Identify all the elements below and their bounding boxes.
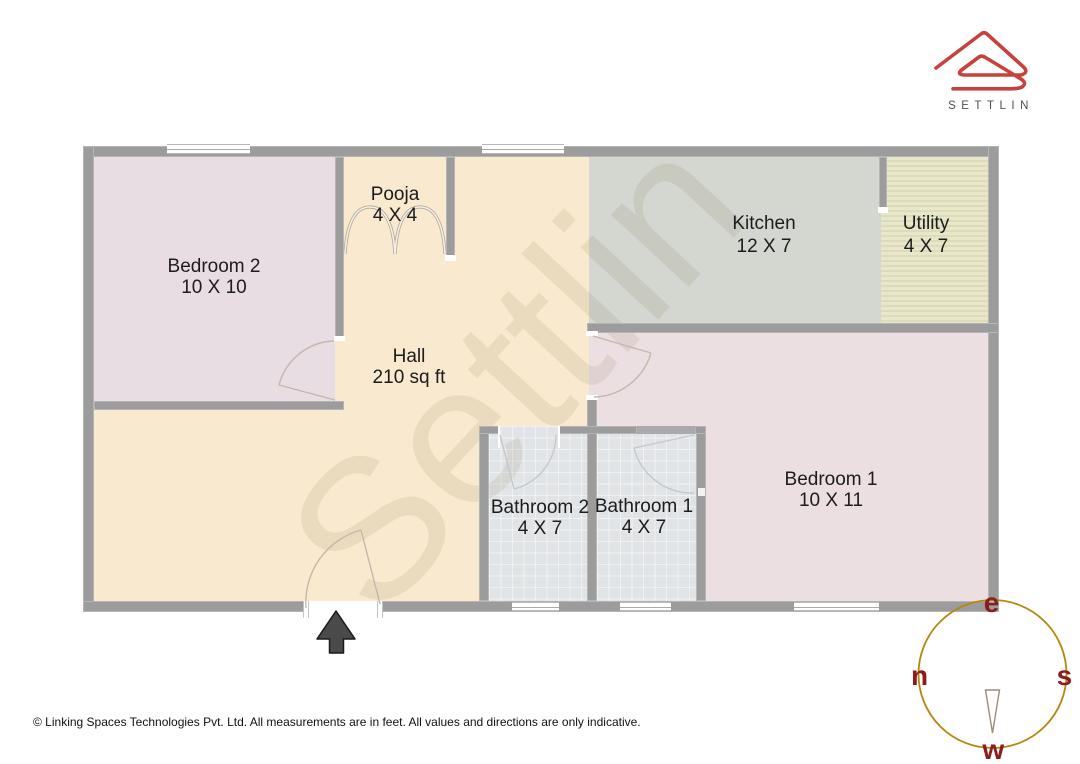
svg-text:SETTLIN: SETTLIN xyxy=(948,100,1034,112)
svg-text:e: e xyxy=(984,587,1000,618)
svg-text:s: s xyxy=(1057,660,1073,691)
svg-text:w: w xyxy=(981,734,1004,764)
svg-text:n: n xyxy=(911,660,928,691)
